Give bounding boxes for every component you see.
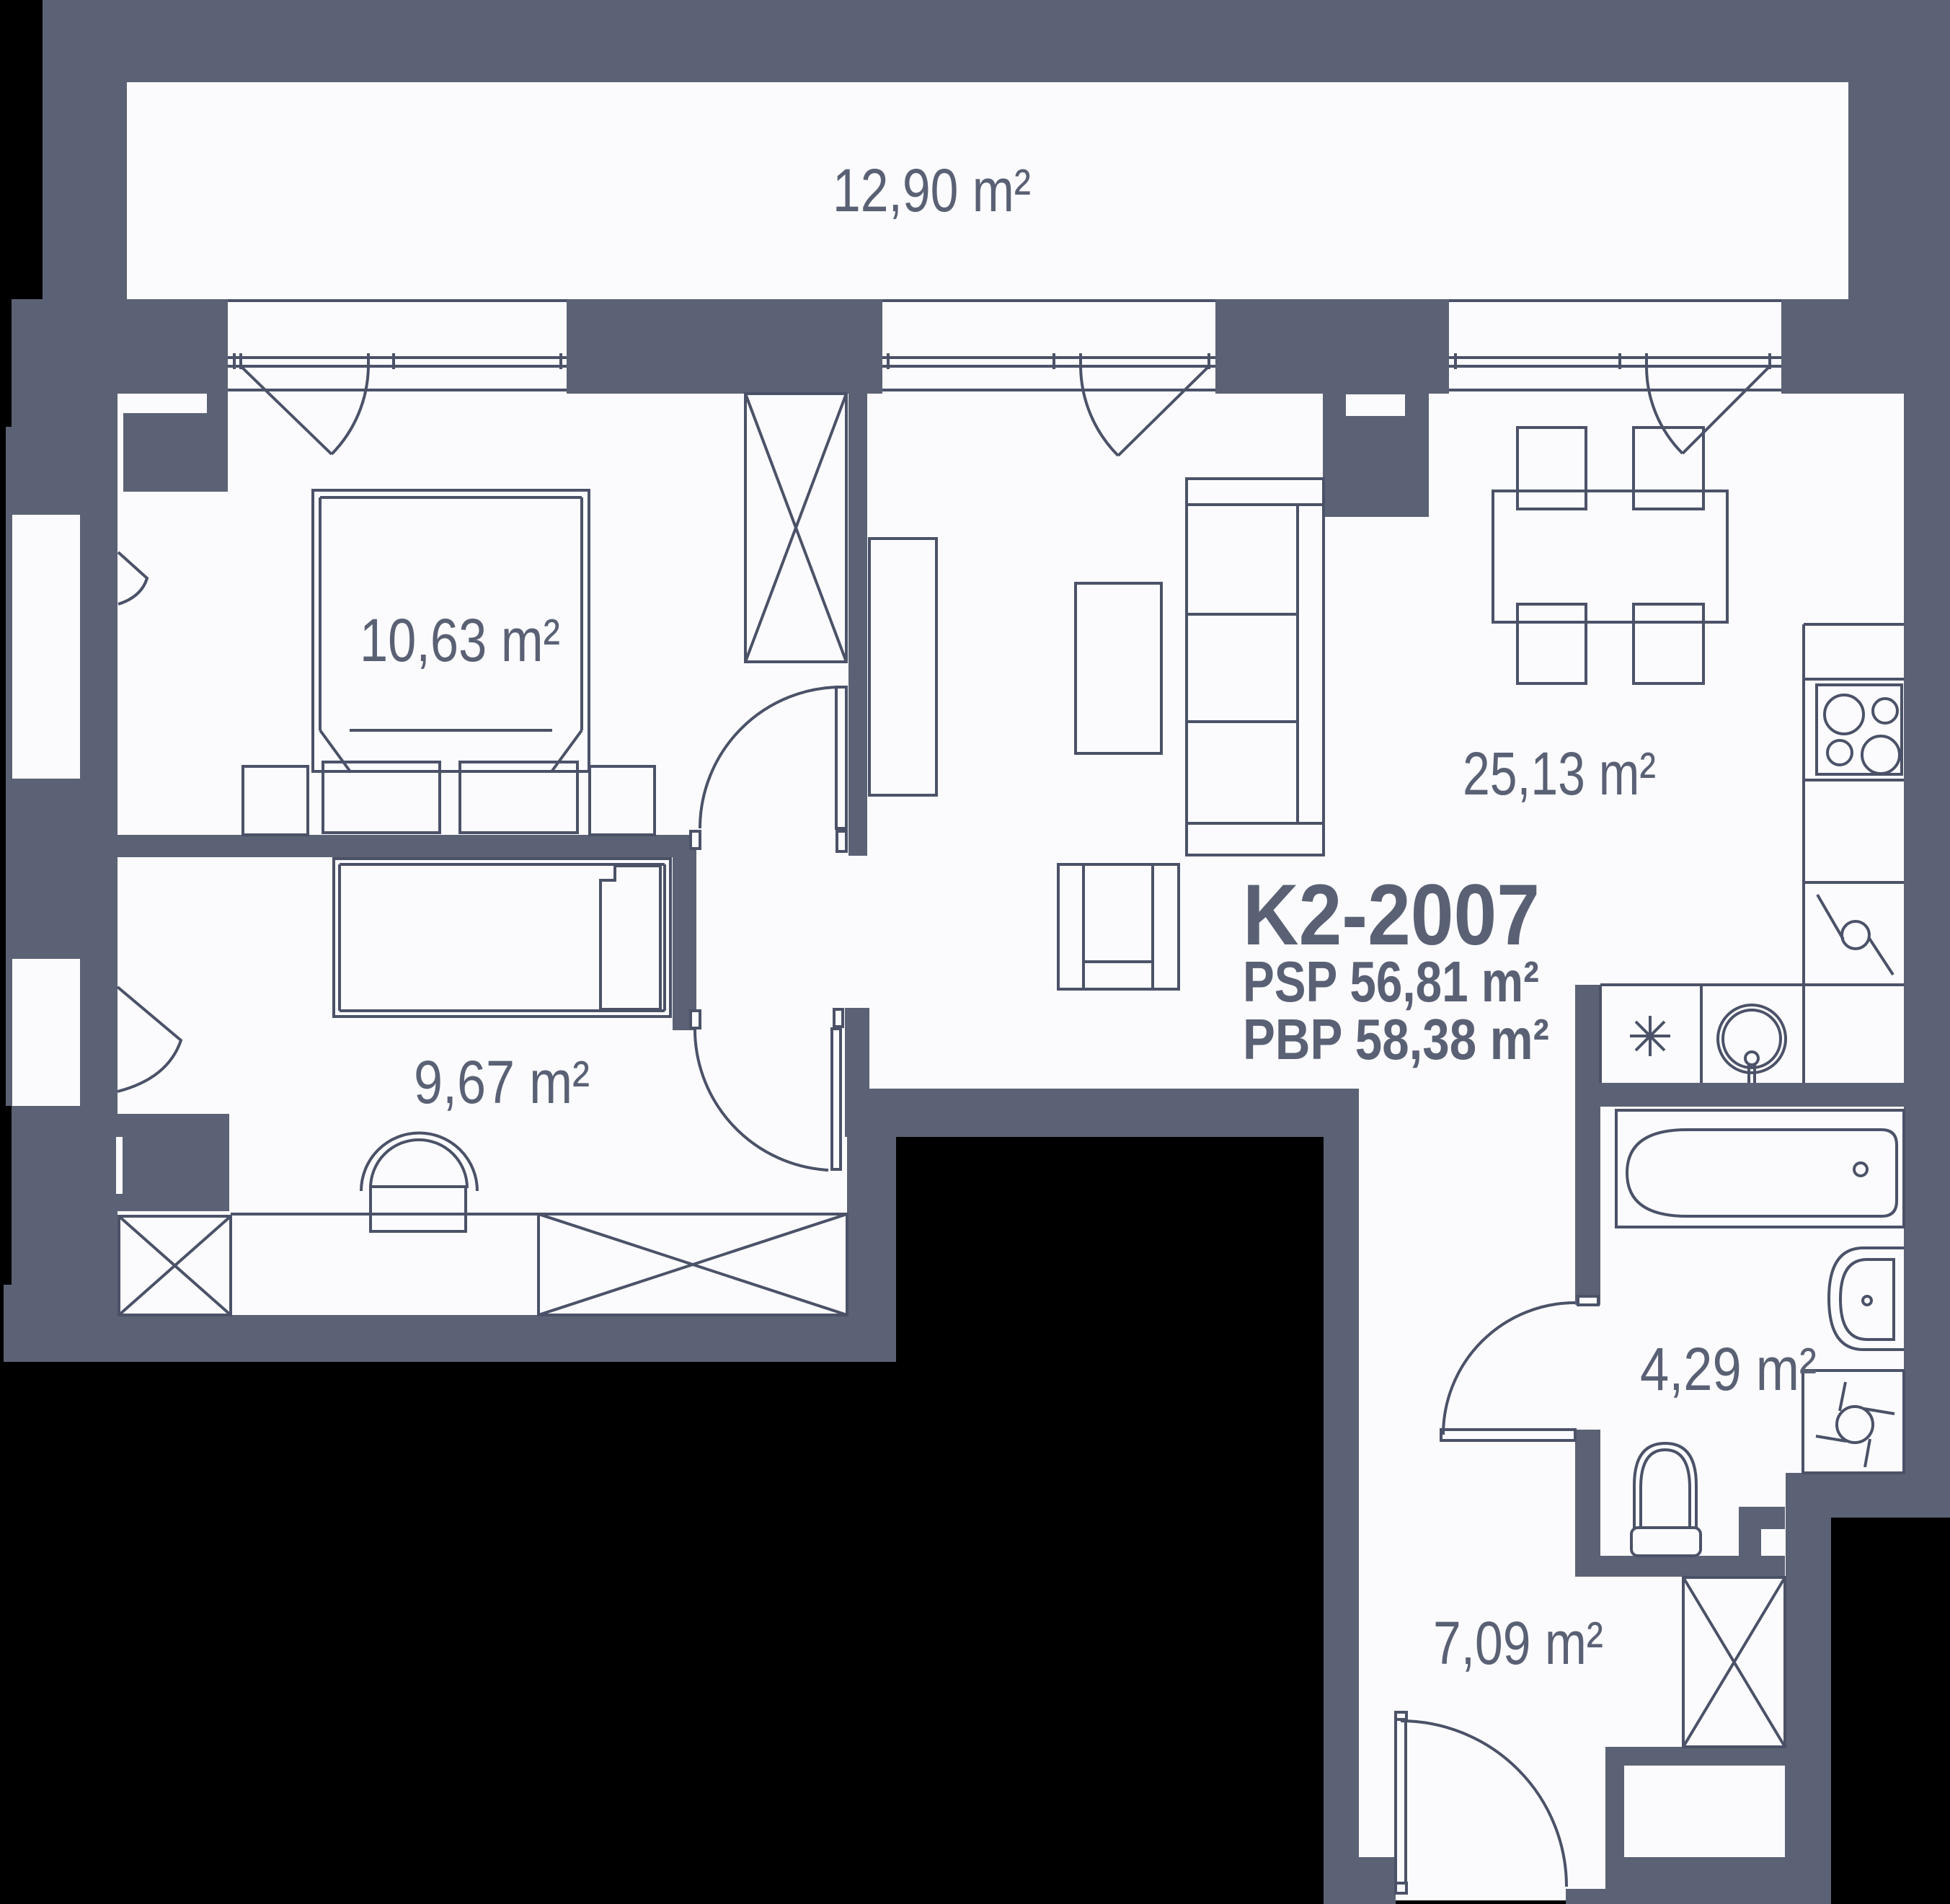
svg-text:25,13 m²: 25,13 m² bbox=[1463, 740, 1656, 807]
svg-text:12,90 m²: 12,90 m² bbox=[833, 156, 1031, 224]
svg-text:PSP 56,81 m²: PSP 56,81 m² bbox=[1243, 949, 1539, 1014]
svg-text:K2-2007: K2-2007 bbox=[1243, 867, 1540, 963]
svg-text:7,09 m²: 7,09 m² bbox=[1433, 1609, 1603, 1677]
svg-text:10,63 m²: 10,63 m² bbox=[360, 606, 560, 674]
svg-text:PBP 58,38 m²: PBP 58,38 m² bbox=[1243, 1007, 1549, 1071]
svg-text:9,67 m²: 9,67 m² bbox=[414, 1048, 590, 1116]
svg-text:4,29 m²: 4,29 m² bbox=[1640, 1335, 1817, 1403]
